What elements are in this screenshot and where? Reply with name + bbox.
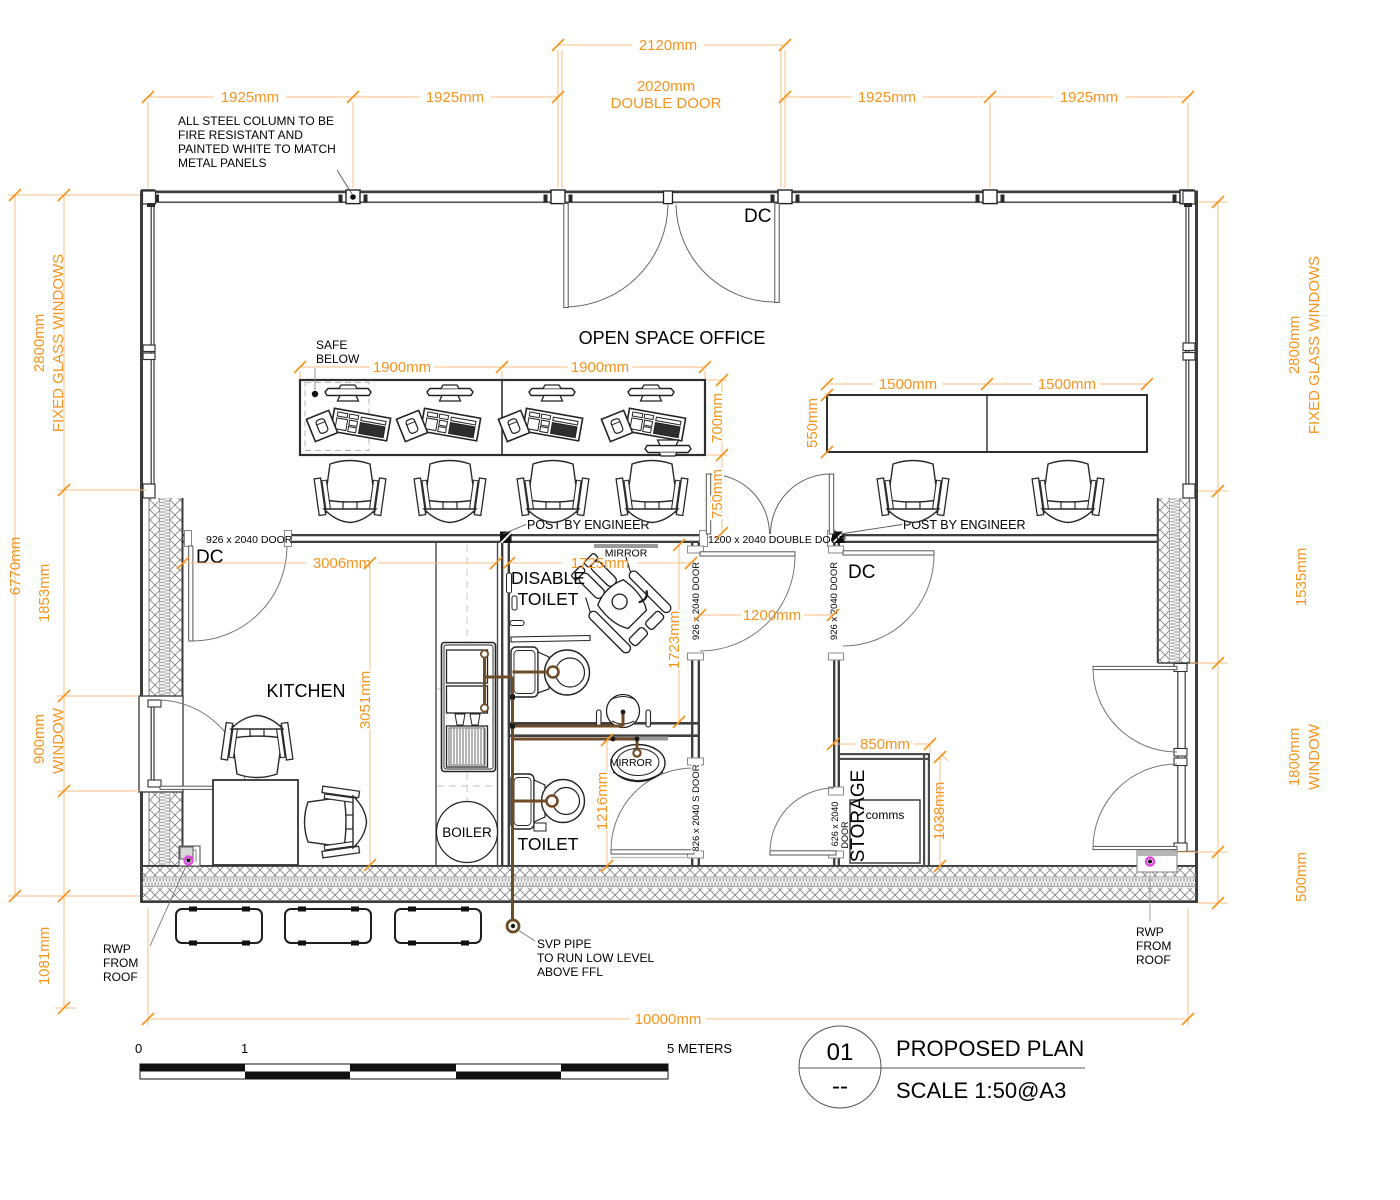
svg-text:FIXED GLASS WINDOWS: FIXED GLASS WINDOWS xyxy=(50,254,67,432)
svg-text:5 METERS: 5 METERS xyxy=(667,1041,732,1056)
svg-text:1535mm: 1535mm xyxy=(1293,548,1310,606)
svg-text:1925mm: 1925mm xyxy=(426,89,484,106)
svg-text:METAL PANELS: METAL PANELS xyxy=(178,156,266,170)
svg-text:FROM: FROM xyxy=(103,956,138,970)
svg-text:1725mm: 1725mm xyxy=(571,555,629,572)
svg-text:1723mm: 1723mm xyxy=(666,611,683,669)
svg-text:BELOW: BELOW xyxy=(316,352,360,366)
svg-text:2020mm: 2020mm xyxy=(637,78,695,95)
svg-text:1925mm: 1925mm xyxy=(1060,89,1118,106)
svg-text:TOILET: TOILET xyxy=(518,589,579,609)
svg-text:2120mm: 2120mm xyxy=(639,37,697,54)
svg-text:ABOVE FFL: ABOVE FFL xyxy=(537,965,603,979)
svg-text:550mm: 550mm xyxy=(804,398,821,448)
svg-text:ALL STEEL COLUMN TO BE: ALL STEEL COLUMN TO BE xyxy=(178,114,334,128)
svg-text:1800mm: 1800mm xyxy=(1286,728,1303,786)
svg-text:2800mm: 2800mm xyxy=(1286,316,1303,374)
svg-text:KITCHEN: KITCHEN xyxy=(266,681,345,701)
svg-text:DC: DC xyxy=(196,547,223,568)
svg-text:826 x 2040 S DOOR: 826 x 2040 S DOOR xyxy=(691,764,702,851)
svg-text:01: 01 xyxy=(827,1039,854,1066)
svg-text:1853mm: 1853mm xyxy=(36,564,53,622)
svg-text:SVP PIPE: SVP PIPE xyxy=(537,937,591,951)
svg-text:0: 0 xyxy=(135,1041,142,1056)
svg-text:1900mm: 1900mm xyxy=(571,359,629,376)
svg-text:3006mm: 3006mm xyxy=(313,555,371,572)
svg-text:DOUBLE DOOR: DOUBLE DOOR xyxy=(611,95,722,112)
svg-text:RWP: RWP xyxy=(1136,925,1164,939)
svg-text:926 x 2040 DOOR: 926 x 2040 DOOR xyxy=(829,562,840,640)
svg-text:926 x 2040 DOOR: 926 x 2040 DOOR xyxy=(206,534,293,546)
svg-text:ROOF: ROOF xyxy=(1136,953,1171,967)
svg-text:626 x 2040: 626 x 2040 xyxy=(830,802,840,847)
svg-text:FIRE RESISTANT AND: FIRE RESISTANT AND xyxy=(178,128,303,142)
svg-text:3051mm: 3051mm xyxy=(357,671,374,729)
svg-text:FIXED GLASS WINDOWS: FIXED GLASS WINDOWS xyxy=(1306,256,1323,434)
svg-text:1200 x 2040 DOUBLE DOOR: 1200 x 2040 DOUBLE DOOR xyxy=(708,534,847,546)
svg-text:1925mm: 1925mm xyxy=(858,89,916,106)
svg-text:DC: DC xyxy=(848,562,875,583)
svg-text:850mm: 850mm xyxy=(860,736,910,753)
svg-text:OPEN SPACE OFFICE: OPEN SPACE OFFICE xyxy=(579,328,766,348)
svg-text:PAINTED WHITE TO MATCH: PAINTED WHITE TO MATCH xyxy=(178,142,336,156)
svg-text:PROPOSED PLAN: PROPOSED PLAN xyxy=(896,1036,1084,1061)
svg-text:WINDOW: WINDOW xyxy=(1306,723,1323,790)
svg-text:1: 1 xyxy=(241,1041,248,1056)
svg-text:WINDOW: WINDOW xyxy=(50,707,67,774)
svg-text:1500mm: 1500mm xyxy=(1038,376,1096,393)
svg-text:1925mm: 1925mm xyxy=(221,89,279,106)
svg-text:900mm: 900mm xyxy=(31,714,48,764)
svg-text:RWP: RWP xyxy=(103,942,131,956)
svg-text:10000mm: 10000mm xyxy=(635,1011,702,1028)
svg-text:SAFE: SAFE xyxy=(316,338,347,352)
svg-text:1200mm: 1200mm xyxy=(743,607,801,624)
svg-text:1216mm: 1216mm xyxy=(594,772,611,830)
svg-text:SCALE 1:50@A3: SCALE 1:50@A3 xyxy=(896,1078,1066,1103)
svg-text:FROM: FROM xyxy=(1136,939,1171,953)
svg-text:6770mm: 6770mm xyxy=(7,537,24,595)
svg-text:750mm: 750mm xyxy=(709,469,726,519)
svg-text:500mm: 500mm xyxy=(1293,852,1310,902)
svg-text:1500mm: 1500mm xyxy=(879,376,937,393)
svg-text:1900mm: 1900mm xyxy=(373,359,431,376)
svg-text:2800mm: 2800mm xyxy=(31,314,48,372)
svg-text:MIRROR: MIRROR xyxy=(610,757,653,769)
svg-text:926 x 2040 DOOR: 926 x 2040 DOOR xyxy=(691,562,702,640)
svg-text:TOILET: TOILET xyxy=(518,834,579,854)
svg-text:TO RUN LOW LEVEL: TO RUN LOW LEVEL xyxy=(537,951,654,965)
svg-text:1038mm: 1038mm xyxy=(931,782,948,840)
svg-text:STORAGE: STORAGE xyxy=(848,770,869,863)
svg-text:ROOF: ROOF xyxy=(103,970,138,984)
svg-text:DC: DC xyxy=(744,206,771,227)
svg-text:1081mm: 1081mm xyxy=(36,927,53,985)
svg-text:--: -- xyxy=(832,1073,848,1100)
svg-text:BOILER: BOILER xyxy=(442,825,492,840)
svg-text:700mm: 700mm xyxy=(709,393,726,443)
svg-text:comms: comms xyxy=(866,808,905,822)
